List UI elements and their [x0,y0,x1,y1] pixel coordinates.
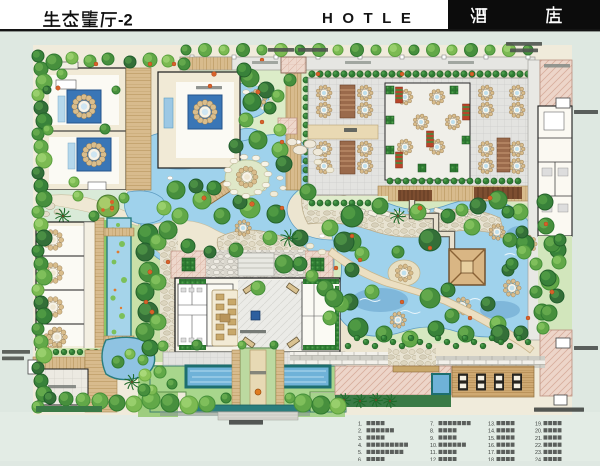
svg-text:5.: 5. [358,450,363,456]
svg-text:9.: 9. [430,436,435,442]
svg-text:14.: 14. [488,429,496,435]
svg-text:20.: 20. [535,429,543,435]
svg-text:15.: 15. [488,436,496,442]
svg-text:19.: 19. [535,421,543,427]
svg-text:2.: 2. [358,429,363,435]
svg-text:7.: 7. [430,421,435,427]
svg-text:8.: 8. [430,429,435,435]
svg-text:21.: 21. [535,436,543,442]
svg-text:HOTLE: HOTLE [322,10,420,27]
svg-text:24.: 24. [535,457,543,461]
svg-text:6.: 6. [358,457,363,461]
svg-text:3.: 3. [358,436,363,442]
svg-text:-2: -2 [118,12,133,30]
svg-text:22.: 22. [535,443,543,449]
svg-text:1.: 1. [358,421,363,427]
svg-text:16.: 16. [488,443,496,449]
svg-text:10.: 10. [430,443,438,449]
svg-text:11.: 11. [430,450,437,456]
svg-text:4.: 4. [358,443,363,449]
svg-text:23.: 23. [535,450,543,456]
svg-text:12.: 12. [430,457,438,461]
svg-text:17.: 17. [488,450,496,456]
svg-text:13.: 13. [488,421,496,427]
svg-text:18.: 18. [488,457,496,461]
